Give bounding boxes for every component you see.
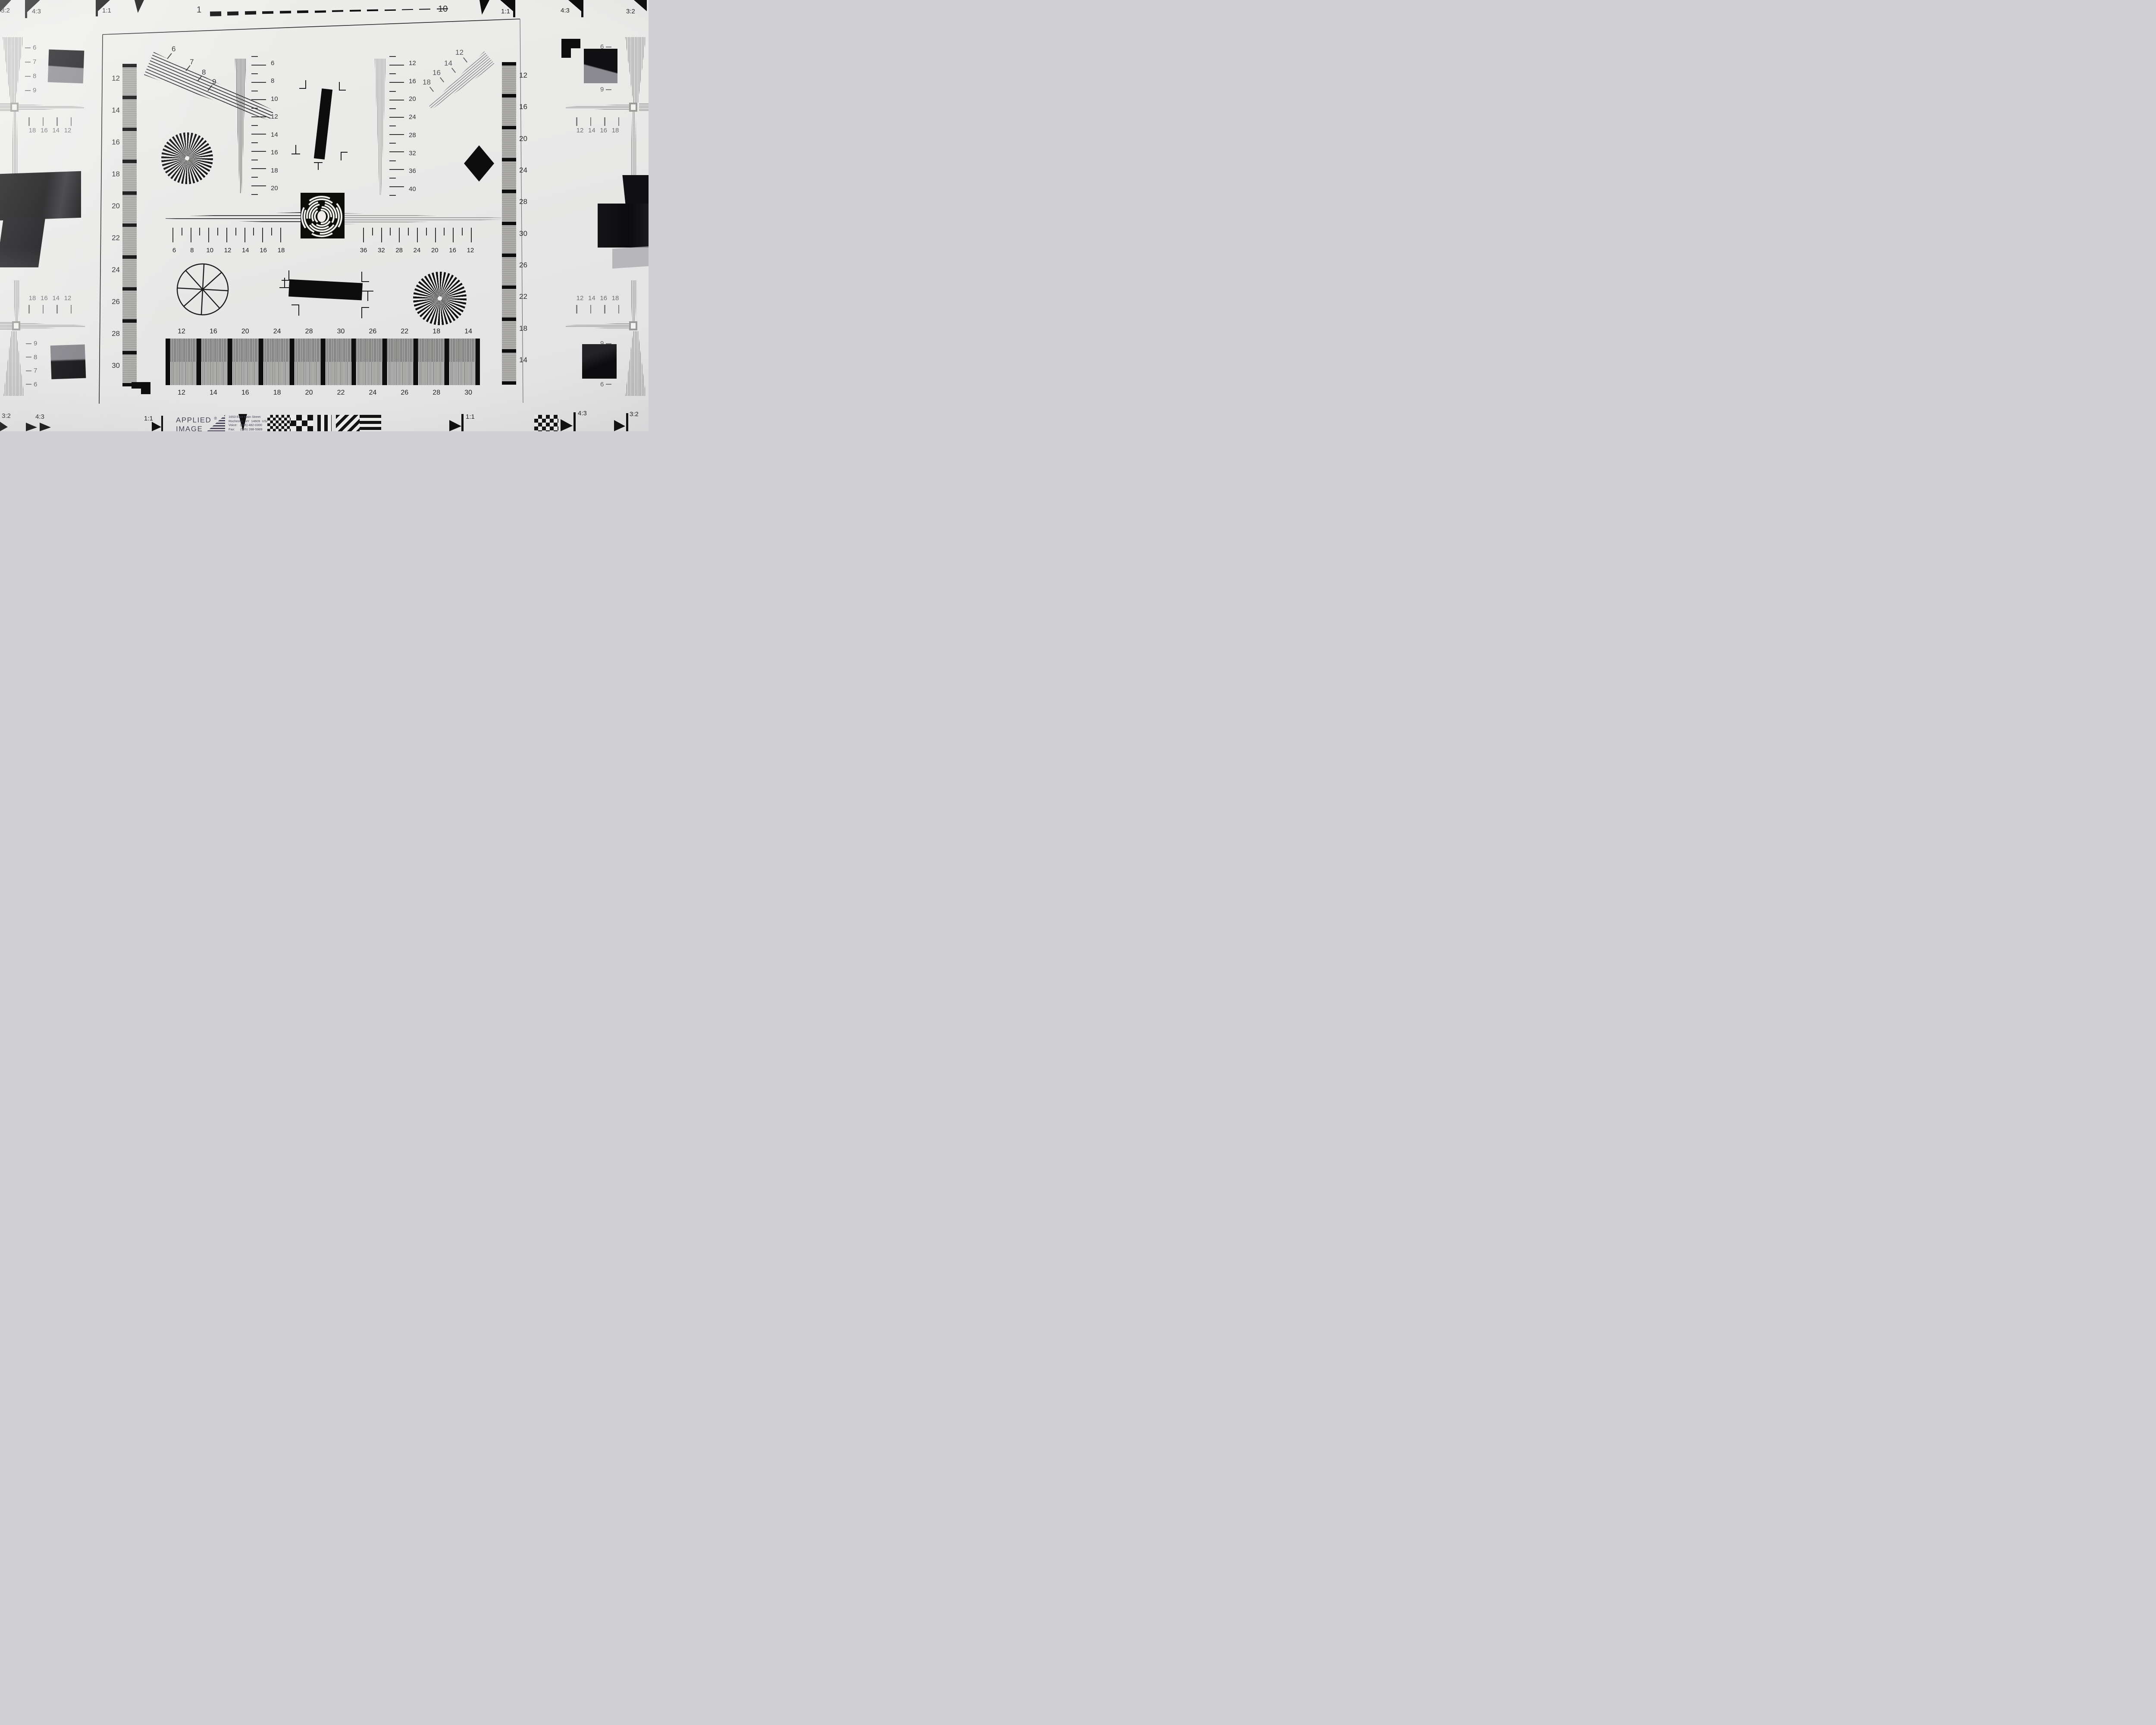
edge-bar: [461, 414, 464, 431]
ratio-label: 3:2: [626, 8, 635, 15]
spoke-circle: [176, 263, 229, 316]
tick: [576, 305, 577, 314]
registration-mark: [288, 270, 289, 281]
dash: [227, 11, 238, 16]
registration-mark: [339, 90, 346, 91]
band-block: [445, 339, 476, 385]
ratio-label: 1:1: [102, 7, 111, 14]
dash: [26, 357, 31, 358]
registration-mark: [341, 152, 348, 153]
fan-label: 8: [25, 72, 36, 80]
scale-end-label: 10: [438, 4, 448, 14]
band-bottom-labels: 12141618202224262830: [166, 389, 484, 397]
registration-mark: [298, 304, 299, 316]
edge-bar: [573, 412, 576, 431]
left-wedge-scale-labels: 68101214161820: [271, 60, 278, 192]
band-block: [228, 339, 259, 385]
registration-mark: [295, 145, 296, 154]
ratio-label: 1:1: [144, 415, 153, 422]
edge-bar: [96, 0, 98, 16]
registration-mark: [361, 307, 369, 308]
registration-mark: [341, 152, 342, 160]
dash: [25, 76, 31, 77]
tick: [43, 117, 44, 126]
dash: [606, 384, 611, 385]
ratio-label: 4:3: [561, 7, 570, 14]
dash: [402, 9, 413, 10]
edge-bar: [581, 0, 583, 17]
glossy-patch: [582, 344, 617, 379]
band-block: [290, 339, 321, 385]
dash: [606, 47, 611, 47]
band-block: [414, 339, 445, 385]
edge-bar: [513, 0, 515, 17]
edge-tab: [141, 389, 150, 394]
resolution-test-chart-photo: 3:2 4:3 1:1 1 10 1:1 4:3 3:2 6789 181614…: [0, 0, 649, 431]
band-block: [351, 339, 382, 385]
dash: [350, 9, 361, 12]
corner-tick-labels: 12141618: [574, 127, 621, 134]
ratio-label: 3:2: [1, 7, 10, 14]
dash: [25, 47, 31, 48]
center-scale-right-labels: 36322824201612: [357, 247, 476, 254]
dash: [419, 9, 430, 10]
dash: [262, 11, 273, 14]
ratio-label: 4:3: [578, 410, 587, 417]
dash: [280, 11, 291, 14]
center-ring-target: [301, 193, 345, 238]
band-block: [259, 339, 290, 385]
fine-checkerboard: [267, 415, 291, 431]
glossy-patch: [48, 50, 85, 84]
dash: [210, 11, 221, 16]
dash: [25, 90, 31, 91]
edge-tab: [561, 48, 571, 58]
center-scale-ticks: [363, 228, 472, 242]
dash: [606, 89, 611, 90]
left-strip-labels: 12141618202224262830: [102, 75, 120, 369]
cross-arm: [639, 103, 649, 111]
logo-line1: APPLIED ®: [176, 414, 218, 425]
right-wedge-scale-labels: 1216202428323640: [409, 60, 416, 193]
edge-t-reflection: [612, 246, 649, 269]
fan-label: 9: [600, 86, 611, 93]
fan-label: 6: [600, 381, 611, 388]
registration-mark: [361, 307, 362, 318]
edge-t-tab: [0, 218, 45, 267]
tick: [28, 117, 30, 126]
fan-label: 8: [26, 354, 37, 361]
glossy-patch: [584, 49, 617, 83]
tick: [604, 305, 605, 314]
edge-tab: [132, 382, 150, 389]
fan-label: 9: [25, 87, 36, 94]
registration-box: [10, 103, 19, 112]
coarse-checkerboard: [291, 415, 313, 431]
dash: [245, 11, 256, 15]
corner-tick-labels: 12141618: [574, 295, 621, 302]
tick: [71, 305, 72, 314]
dash: [315, 10, 326, 13]
horizontal-bars-patch: [360, 415, 381, 431]
edge-t-tab: [0, 171, 81, 221]
corner-tick-labels: 18161412: [27, 295, 73, 302]
registration-mark: [361, 281, 369, 282]
tick: [71, 117, 72, 126]
edge-bar: [25, 0, 27, 18]
edge-bar: [161, 416, 163, 431]
ratio-label: 4:3: [35, 413, 44, 420]
dash: [332, 10, 343, 12]
corner-fan-labels: 6789: [25, 44, 36, 94]
registration-mark: [284, 278, 285, 287]
left-resolution-strip: [122, 64, 137, 386]
dash: [26, 370, 31, 371]
fan-label: 7: [25, 58, 36, 66]
corner-ticks: [28, 117, 72, 126]
right-resolution-strip: [502, 62, 516, 385]
ratio-label: 3:2: [630, 411, 639, 418]
tick: [28, 305, 30, 314]
scale-start-label: 1: [197, 5, 201, 15]
registration-box: [629, 321, 637, 330]
siemens-star: [413, 272, 467, 325]
band-block: [166, 339, 197, 385]
dash: [25, 62, 31, 63]
dash: [384, 9, 395, 11]
registration-mark: [279, 287, 290, 288]
vertical-bars-patch: [317, 415, 332, 431]
cross-arm: [0, 322, 12, 330]
bottom-resolution-band: [166, 339, 480, 385]
tick: [43, 305, 44, 314]
registration-mark: [282, 280, 289, 281]
tick: [576, 117, 577, 126]
fan-label: 7: [26, 367, 37, 374]
tick: [604, 117, 605, 126]
tick: [618, 305, 620, 314]
ratio-label: 1:1: [466, 413, 475, 420]
edge-tab: [561, 39, 580, 48]
wedge-ticks: [251, 56, 266, 195]
cross-arm: [0, 103, 10, 111]
corner-ticks: [576, 117, 619, 126]
center-scale-left-labels: 681012141618: [168, 247, 287, 254]
dash: [367, 9, 378, 11]
tick: [56, 305, 58, 314]
tick: [590, 305, 592, 314]
fan-label: 6: [26, 381, 37, 388]
registration-mark: [367, 291, 368, 301]
tick: [618, 117, 620, 126]
tick: [590, 117, 592, 126]
diagonal-bars-patch: [336, 415, 360, 431]
ratio-label: 1:1: [501, 8, 510, 15]
band-block: [197, 339, 228, 385]
dash: [297, 10, 308, 13]
right-strip-labels: 12162024283026221814: [519, 72, 537, 364]
dash: [26, 384, 31, 385]
wedge-ticks: [389, 56, 404, 196]
registration-mark: [339, 82, 340, 91]
siemens-star: [161, 132, 213, 184]
corner-tick-labels: 18161412: [27, 127, 73, 134]
edge-t-tab: [622, 175, 649, 204]
band-block: [382, 339, 414, 385]
edge-t-tab: [598, 204, 649, 248]
registration-mark: [305, 80, 306, 89]
corner-fan-labels: 9876: [26, 340, 37, 388]
corner-ticks: [576, 305, 619, 314]
tick: [56, 117, 58, 126]
registration-box: [12, 321, 20, 330]
band-block: [321, 339, 352, 385]
logo-address: 1653 East Main StreetRochester, NY 14609…: [229, 415, 269, 431]
center-scale-ticks: [172, 228, 281, 242]
edge-bar: [626, 413, 628, 431]
glossy-patch: [50, 345, 86, 379]
fan-label: 9: [26, 340, 37, 347]
corner-ticks: [28, 305, 72, 314]
registration-mark: [318, 162, 319, 170]
corner-checkerboard: [534, 415, 558, 431]
registration-box: [629, 103, 637, 112]
band-top-labels: 12162024283026221814: [166, 328, 484, 336]
dash: [26, 343, 31, 344]
ratio-label: 3:2: [2, 412, 11, 420]
fan-label: 6: [25, 44, 36, 51]
registration-mark: [361, 272, 362, 282]
ratio-label: 4:3: [32, 8, 41, 15]
registration-mark: [291, 154, 300, 154]
registered-mark: ®: [214, 416, 218, 420]
